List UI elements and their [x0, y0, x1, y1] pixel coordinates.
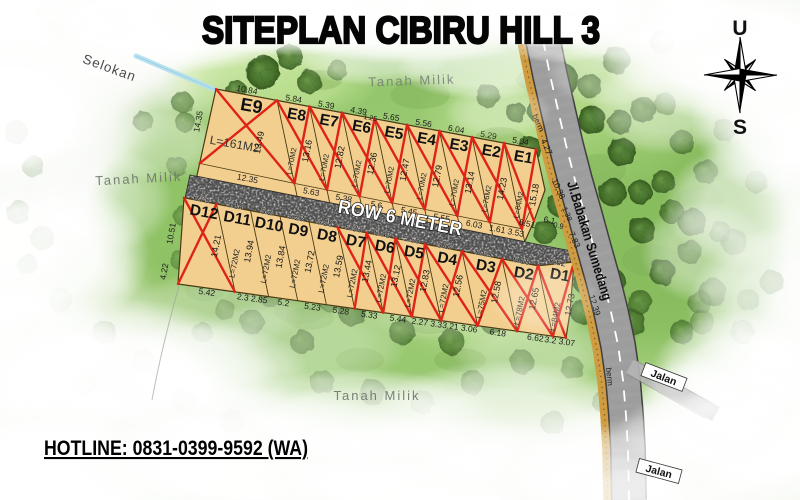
svg-text:U: U — [732, 17, 747, 40]
svg-text:D9: D9 — [287, 220, 310, 240]
svg-text:E9: E9 — [239, 94, 264, 118]
svg-text:E4: E4 — [416, 129, 438, 149]
svg-text:E3: E3 — [448, 136, 470, 156]
svg-text:E7: E7 — [318, 111, 340, 131]
svg-text:S: S — [733, 116, 747, 139]
svg-text:E1: E1 — [512, 148, 534, 168]
svg-text:Tanah Milik: Tanah Milik — [333, 388, 420, 403]
svg-text:D7: D7 — [345, 232, 367, 252]
svg-text:E2: E2 — [480, 142, 502, 162]
svg-text:D3: D3 — [475, 256, 498, 276]
svg-text:D5: D5 — [403, 243, 426, 263]
svg-text:Tanah Milik: Tanah Milik — [368, 71, 456, 89]
svg-text:D6: D6 — [374, 237, 397, 257]
svg-text:E8: E8 — [286, 105, 308, 125]
svg-text:D8: D8 — [316, 226, 339, 246]
svg-text:5.2: 5.2 — [277, 297, 290, 309]
svg-text:E5: E5 — [383, 123, 405, 143]
svg-text:D4: D4 — [436, 249, 459, 269]
svg-text:SITEPLAN CIBIRU HILL 3: SITEPLAN CIBIRU HILL 3 — [202, 10, 600, 52]
svg-text:HOTLINE: 0831-0399-9592 (WA): HOTLINE: 0831-0399-9592 (WA) — [44, 437, 308, 460]
